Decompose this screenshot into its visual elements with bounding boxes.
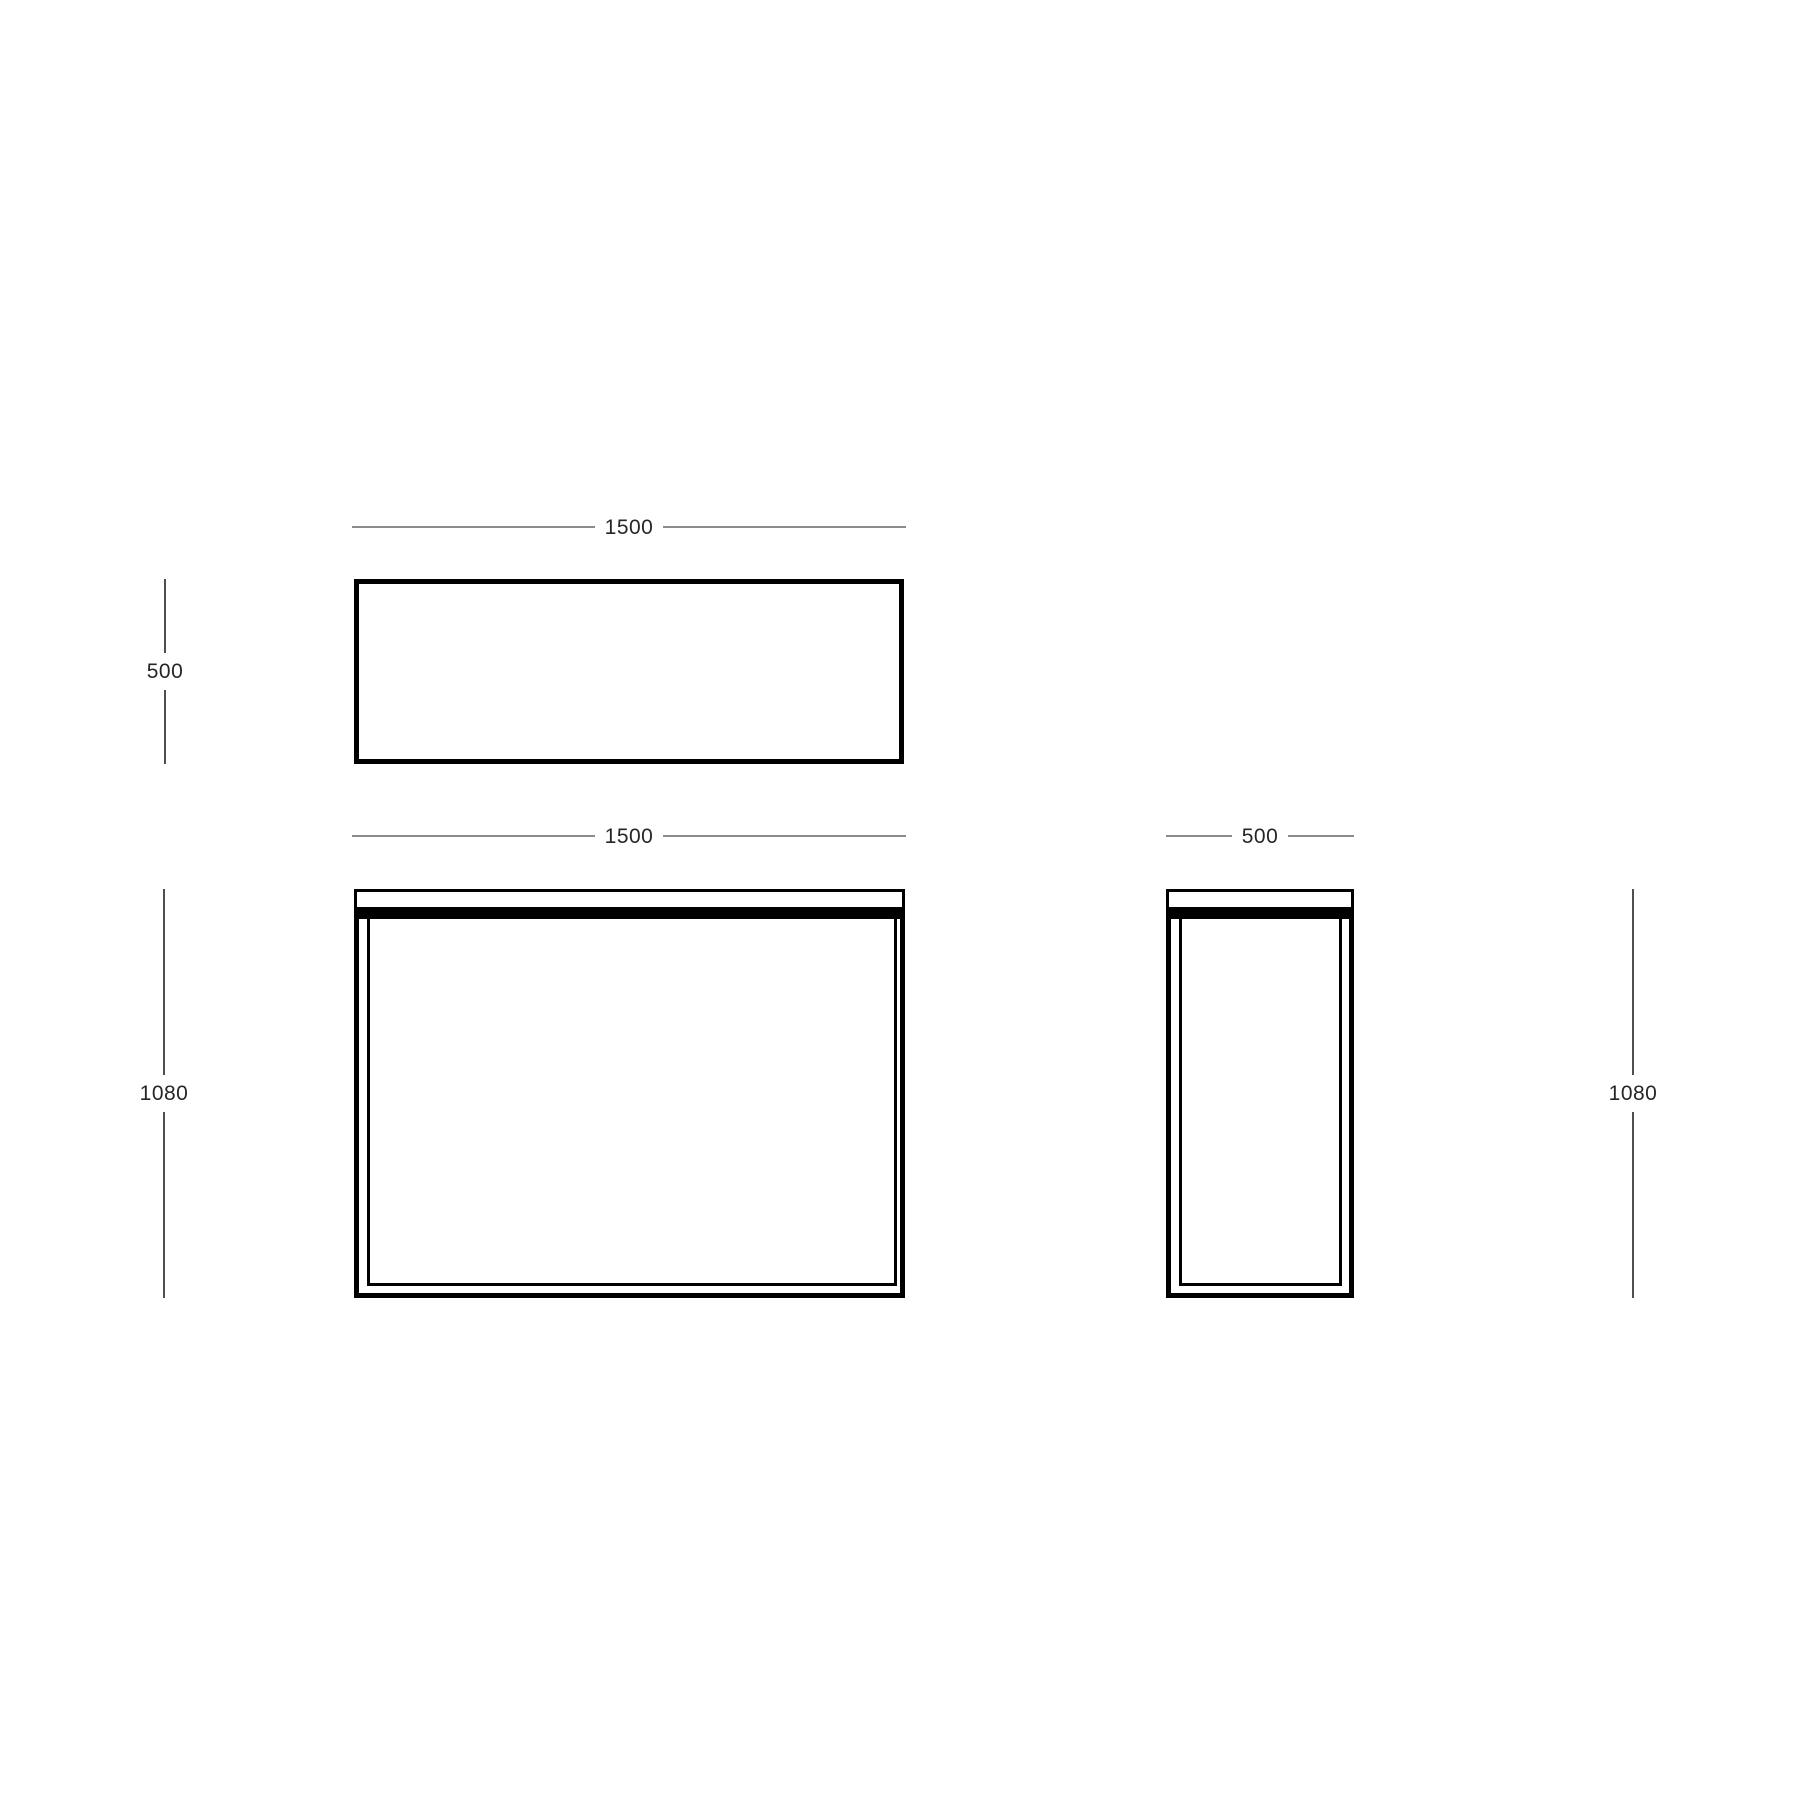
- dimension-line-left-segment: [352, 835, 595, 837]
- front-view-leg-frame-inner: [367, 914, 897, 1286]
- dimension-label: 1080: [140, 1075, 189, 1112]
- dimension-label: 1500: [595, 517, 664, 538]
- dimension-top-view-depth: 500: [134, 579, 196, 764]
- dimension-line-bottom-segment: [164, 690, 166, 764]
- dimension-line-bottom-segment: [1632, 1112, 1634, 1298]
- dimension-side-view-height: 1080: [1602, 889, 1664, 1298]
- dimension-label: 500: [147, 653, 184, 690]
- dimension-line-right-segment: [663, 835, 906, 837]
- side-view-leg-frame-inner: [1179, 914, 1342, 1286]
- dimension-line-left-segment: [352, 526, 595, 528]
- dimension-label: 1080: [1609, 1075, 1658, 1112]
- dimension-label: 500: [1232, 826, 1289, 847]
- dimension-top-view-width: 1500: [352, 514, 906, 540]
- dimension-label: 1500: [595, 826, 664, 847]
- technical-drawing-canvas: 1500 500 1500 1080 500 1080: [0, 0, 1800, 1800]
- dimension-line-top-segment: [1632, 889, 1634, 1075]
- dimension-line-bottom-segment: [163, 1112, 165, 1298]
- top-view-outline: [354, 579, 904, 764]
- dimension-line-right-segment: [663, 526, 906, 528]
- dimension-line-right-segment: [1288, 835, 1354, 837]
- dimension-front-view-width: 1500: [352, 823, 906, 849]
- dimension-front-view-height: 1080: [133, 889, 195, 1298]
- dimension-line-top-segment: [164, 579, 166, 653]
- dimension-line-top-segment: [163, 889, 165, 1075]
- dimension-line-left-segment: [1166, 835, 1232, 837]
- dimension-side-view-width: 500: [1166, 823, 1354, 849]
